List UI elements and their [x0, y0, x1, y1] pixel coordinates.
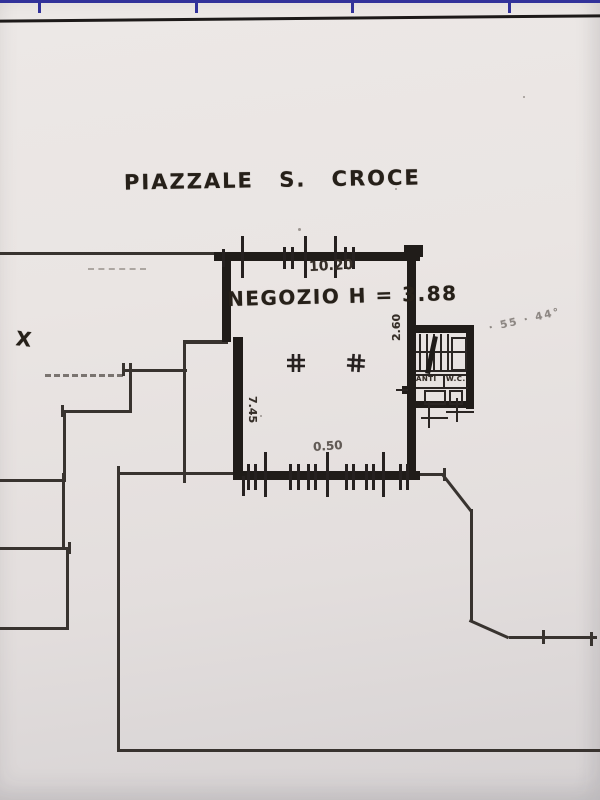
- scan-speck: [395, 188, 397, 190]
- x-mark: X: [15, 326, 33, 351]
- outline-line: [509, 636, 597, 639]
- outline-line: [117, 473, 120, 752]
- fixture-tick: [456, 398, 458, 422]
- window-tick: [314, 464, 317, 490]
- fixture-tick: [428, 402, 430, 428]
- stair-tread: [440, 334, 442, 372]
- window-tick-long: [382, 452, 385, 497]
- outline-line: [117, 472, 237, 475]
- window-tick-long: [304, 236, 307, 278]
- stair-block-wall-right: [466, 325, 474, 409]
- frame-blue-tick: [508, 2, 511, 13]
- outline-line: [0, 479, 66, 482]
- outline-line: [129, 363, 132, 413]
- window-tick-long: [264, 452, 267, 497]
- window-tick: [289, 464, 292, 490]
- frame-blue-tick: [38, 2, 41, 13]
- window-tick: [254, 464, 257, 490]
- stair-tread: [419, 334, 421, 372]
- outline-line: [183, 340, 186, 483]
- outline-dashed-line: [88, 268, 146, 270]
- fixture-tick: [396, 389, 408, 391]
- fixture-tick: [421, 417, 448, 419]
- dimension-right-recess: 2.60: [390, 314, 403, 341]
- outline-tick: [542, 630, 545, 644]
- window-tick: [297, 464, 300, 490]
- window-tick: [242, 476, 245, 496]
- fixture-tick: [446, 411, 474, 413]
- dimension-top-width: 10.20: [309, 257, 354, 275]
- window-tick: [372, 464, 375, 490]
- outline-line: [0, 252, 216, 255]
- frame-blue-tick: [351, 2, 354, 13]
- wall-left-lower: [233, 337, 243, 480]
- column-hash-icon: [346, 353, 365, 372]
- outline-line: [66, 548, 69, 630]
- room-label-wc: W.C.: [446, 375, 466, 383]
- window-tick: [406, 464, 409, 490]
- street-title: PIAZZALE S. CROCE: [124, 165, 421, 194]
- outline-line: [63, 410, 66, 482]
- stair-tread: [447, 334, 449, 372]
- window-tick: [283, 247, 286, 269]
- window-tick-long: [241, 236, 244, 278]
- outline-tick: [590, 632, 593, 646]
- window-tick: [365, 464, 368, 490]
- outline-line: [62, 480, 65, 550]
- room-label-anti: ANTI: [416, 375, 437, 383]
- window-tick-long: [326, 452, 329, 497]
- outline-line: [0, 547, 70, 550]
- window-tick: [222, 249, 225, 267]
- partition-line: [443, 374, 445, 387]
- scan-speck: [523, 96, 525, 98]
- window-tick: [352, 464, 355, 490]
- outline-tick: [122, 363, 125, 376]
- floor-plan-scan: PIAZZALE S. CROCE ANTI: [0, 0, 600, 800]
- room-label: NEGOZIO H = 3.88: [227, 281, 458, 311]
- window-tick: [399, 464, 402, 490]
- window-tick: [247, 464, 250, 490]
- frame-blue-tick: [195, 2, 198, 13]
- frame-black-rule: [0, 14, 600, 22]
- dimension-left-depth: 7.45: [246, 396, 259, 423]
- wall-corner-block: [404, 245, 423, 257]
- outline-line: [117, 749, 600, 752]
- column-hash-icon: [287, 354, 305, 372]
- outline-line: [62, 410, 131, 413]
- outline-line: [0, 627, 68, 630]
- stair-landing-box: [451, 337, 467, 371]
- outline-diagonal: [442, 474, 473, 513]
- dimension-bottom: 0.50: [313, 438, 344, 454]
- scan-speck: [298, 228, 301, 231]
- window-tick: [307, 464, 310, 490]
- window-tick: [345, 464, 348, 490]
- outline-dashed-line: [45, 374, 123, 377]
- stair-block-wall-top: [413, 325, 474, 333]
- scan-speck: [260, 415, 262, 417]
- outline-line: [470, 509, 473, 621]
- outline-diagonal: [469, 619, 510, 639]
- partition-line: [416, 387, 468, 389]
- window-tick: [291, 247, 294, 269]
- faint-pencil-note: · 55 · 44°: [488, 306, 562, 334]
